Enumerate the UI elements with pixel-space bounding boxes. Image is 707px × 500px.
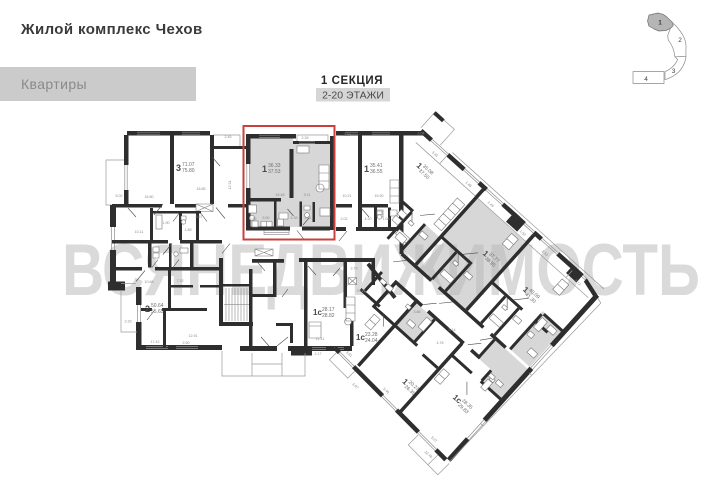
svg-text:7.32: 7.32 xyxy=(177,279,184,283)
svg-text:10.11: 10.11 xyxy=(135,230,144,234)
svg-text:1: 1 xyxy=(262,164,267,174)
svg-text:1: 1 xyxy=(658,20,662,27)
svg-text:55.65: 55.65 xyxy=(151,309,164,315)
svg-text:1.90: 1.90 xyxy=(163,221,170,225)
svg-text:8.57: 8.57 xyxy=(196,215,203,219)
svg-text:28.82: 28.82 xyxy=(322,313,335,319)
svg-text:16.80: 16.80 xyxy=(145,195,154,199)
svg-text:1.89: 1.89 xyxy=(185,228,192,232)
svg-text:1 СЕКЦИЯ: 1 СЕКЦИЯ xyxy=(321,75,383,87)
svg-text:3.79: 3.79 xyxy=(351,267,358,271)
svg-text:12.91: 12.91 xyxy=(189,334,198,338)
svg-text:12.31: 12.31 xyxy=(228,181,232,190)
svg-text:2: 2 xyxy=(145,304,150,314)
svg-text:2.17: 2.17 xyxy=(315,352,322,356)
svg-text:5.02: 5.02 xyxy=(116,194,123,198)
svg-text:16.65: 16.65 xyxy=(197,187,206,191)
svg-text:1.08: 1.08 xyxy=(383,217,390,221)
svg-text:2.82: 2.82 xyxy=(250,217,257,221)
svg-text:10.68: 10.68 xyxy=(145,280,154,284)
svg-text:10.21: 10.21 xyxy=(343,194,352,198)
svg-text:3.11: 3.11 xyxy=(357,289,364,293)
svg-text:3: 3 xyxy=(176,163,181,173)
svg-text:3.33: 3.33 xyxy=(125,320,132,324)
svg-text:37.53: 37.53 xyxy=(268,169,281,175)
svg-text:4.76: 4.76 xyxy=(437,341,444,345)
svg-text:2-20 ЭТАЖИ: 2-20 ЭТАЖИ xyxy=(322,90,384,102)
svg-text:2.50: 2.50 xyxy=(183,341,190,345)
svg-text:3: 3 xyxy=(672,68,676,75)
svg-text:4.20: 4.20 xyxy=(365,217,372,221)
svg-text:15.90: 15.90 xyxy=(375,194,384,198)
svg-text:9.11: 9.11 xyxy=(304,193,311,197)
svg-text:2.39: 2.39 xyxy=(302,136,309,140)
svg-text:2.04: 2.04 xyxy=(418,132,425,136)
svg-text:21.11: 21.11 xyxy=(316,337,325,341)
svg-text:2.45: 2.45 xyxy=(225,135,232,139)
svg-text:15.48: 15.48 xyxy=(276,193,285,197)
svg-text:Жилой комплекс Чехов: Жилой комплекс Чехов xyxy=(20,21,203,38)
svg-text:4.35: 4.35 xyxy=(291,216,298,220)
svg-text:1: 1 xyxy=(364,164,369,174)
svg-text:17.42: 17.42 xyxy=(151,340,160,344)
svg-text:Квартиры: Квартиры xyxy=(21,76,87,92)
svg-text:24.04: 24.04 xyxy=(365,338,378,344)
svg-text:5.90: 5.90 xyxy=(263,216,270,220)
svg-text:2.02: 2.02 xyxy=(341,217,348,221)
svg-text:75.80: 75.80 xyxy=(182,168,195,174)
svg-text:2.29: 2.29 xyxy=(344,133,351,137)
svg-text:3.86: 3.86 xyxy=(414,310,421,314)
svg-text:2: 2 xyxy=(678,37,682,44)
svg-text:5.14: 5.14 xyxy=(449,328,456,332)
svg-text:1.46: 1.46 xyxy=(304,216,311,220)
svg-text:36.55: 36.55 xyxy=(370,169,383,175)
svg-text:4: 4 xyxy=(644,76,648,83)
